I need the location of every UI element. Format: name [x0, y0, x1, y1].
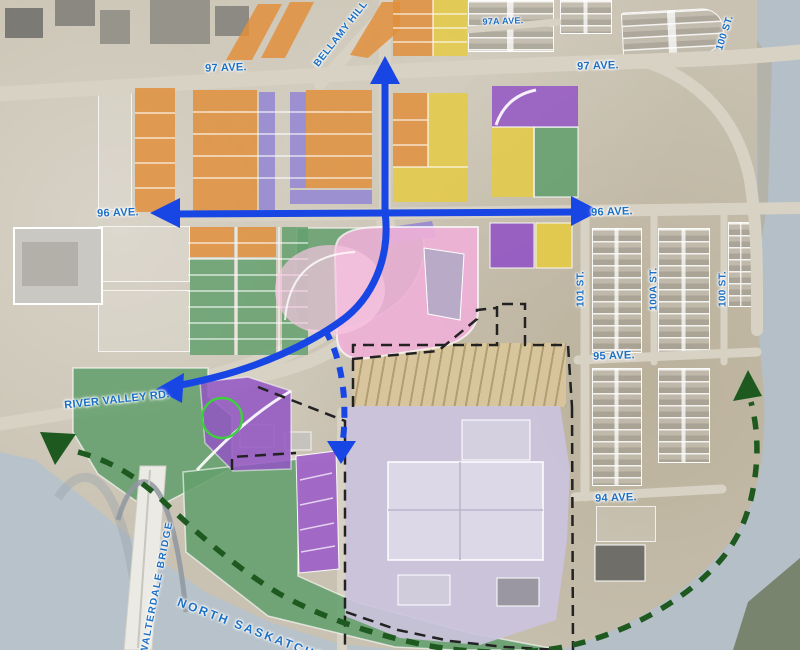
power-plant-site	[345, 406, 645, 645]
street-label-97-ave-east: 97 AVE.	[577, 59, 619, 72]
trail-arrowhead-northwest	[40, 432, 76, 465]
street-label-95-ave: 95 AVE.	[593, 349, 635, 362]
map-overlay-svg	[0, 0, 800, 650]
street-label-100a-st: 100A ST.	[649, 267, 660, 310]
downtown-buildings	[5, 0, 249, 44]
trail-arrowhead-northeast	[733, 370, 762, 401]
street-label-96-ave-west: 96 AVE.	[97, 206, 139, 219]
map-canvas[interactable]: 97 AVE. 97 AVE. 97A AVE. BELLAMY HILL 96…	[0, 0, 800, 650]
street-label-96-ave-east: 96 AVE.	[591, 205, 633, 218]
street-label-97a-ave: 97A AVE.	[482, 15, 523, 26]
street-label-94-ave: 94 AVE.	[595, 491, 637, 504]
street-label-97-ave-west: 97 AVE.	[205, 61, 247, 74]
street-label-100-st-east: 100 ST.	[718, 271, 729, 307]
street-label-101-st: 101 ST.	[576, 271, 587, 307]
